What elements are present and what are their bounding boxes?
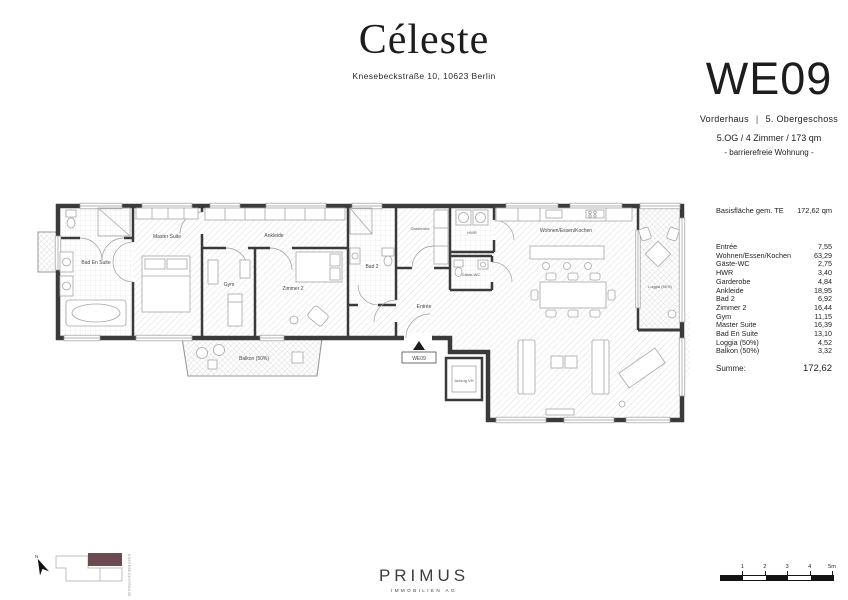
scale-tick: 2 [763,564,766,570]
label-aufzug: Aufzug VH [454,378,473,383]
label-hwr: HWR [467,230,477,235]
unit-building: Vorderhaus [700,114,749,124]
unit-highlight [88,553,122,566]
area-sum-row: Summe: 172,62 [716,363,832,374]
scale-tick: 3 [786,564,789,570]
label-wohnen: Wohnen/Essen/Kochen [540,228,592,234]
unit-id: WE09 [690,56,848,101]
label-garderobe: Garderobe [410,226,430,231]
company-subtitle: IMMOBILIEN AG [0,588,848,593]
sum-label: Summe: [716,364,746,373]
unit-summary: 5.OG / 4 Zimmer / 173 qm [690,133,848,143]
unit-header: WE09 Vorderhaus|5. Obergeschoss 5.OG / 4… [690,56,848,157]
scale-bar: 12345m [720,564,834,586]
area-row: Gäste-WC 2,75 [716,260,832,269]
unit-floor: 5. Obergeschoss [766,114,839,124]
separator: | [756,114,759,124]
sum-value: 172,62 [803,363,832,374]
label-ankleide: Ankleide [264,233,283,239]
entry-door-gap [404,333,432,342]
room-label: Balkon (50%) [716,347,759,356]
scale-tick: 4 [808,564,811,570]
entrance-marker-label: WE09 [412,356,426,362]
label-gym: Gym [224,282,235,288]
unit-location: Vorderhaus|5. Obergeschoss [690,114,848,124]
label-gaeste-wc: Gäste-WC [462,272,481,277]
label-master-suite: Master Suite [153,234,181,240]
area-table-header: Basisfläche gem. TE 172,62 qm [716,206,832,215]
floor-plan: WE09 Bad En Suite Master Suite Gym Zimme… [30,190,690,425]
base-area-label: Basisfläche gem. TE [716,206,784,215]
room-area: 3,32 [818,347,832,356]
area-table-rows: Entrée 7,55 Wohnen/Essen/Kochen 63,29 Gä… [716,243,832,356]
garderobe-closet [434,210,448,264]
label-bad2: Bad 2 [365,264,378,270]
area-table: Basisfläche gem. TE 172,62 qm Entrée 7,5… [716,206,832,374]
label-loggia: Loggia (50%) [648,284,672,289]
label-balkon: Balkon (50%) [239,356,269,362]
label-zimmer2: Zimmer 2 [282,286,303,292]
area-row: Balkon (50%) 3,32 [716,347,832,356]
unit-note: - barrierefreie Wohnung - [690,148,848,157]
scale-tick: 5m [828,564,836,570]
base-area-value: 172,62 qm [797,206,832,215]
label-bad-en-suite: Bad En Suite [81,260,110,266]
scale-tick: 1 [741,564,744,570]
entrance-marker: WE09 [402,341,436,363]
label-entree: Entrée [417,304,432,310]
wardrobe-row [205,208,345,220]
scale-bar-segments [720,575,834,581]
north-label: N [35,554,38,559]
